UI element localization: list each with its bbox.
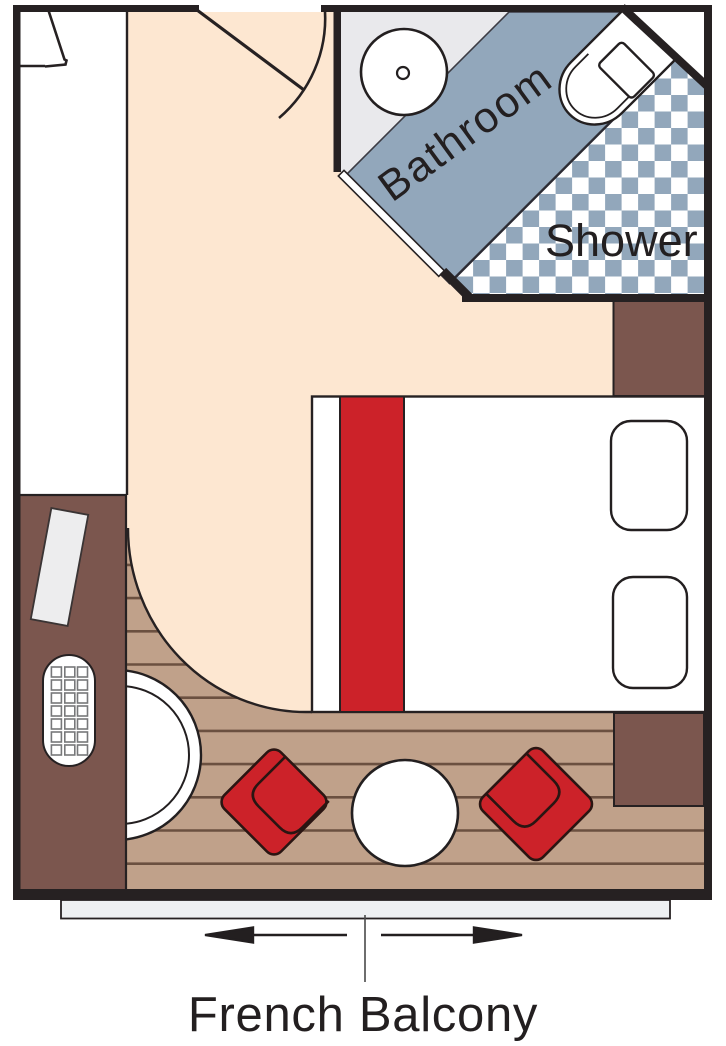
svg-text:French Balcony: French Balcony [188,988,538,1042]
svg-text:Shower: Shower [545,215,698,266]
